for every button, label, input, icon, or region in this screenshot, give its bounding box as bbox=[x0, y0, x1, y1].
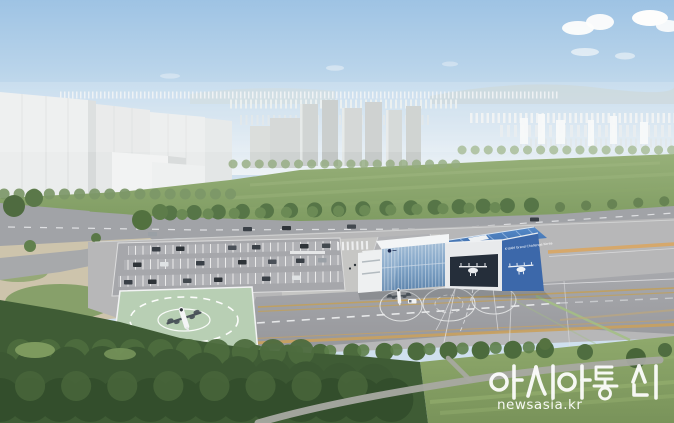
glass-facade bbox=[382, 243, 445, 291]
hangar-front bbox=[445, 240, 502, 291]
news-photo-rendering: UAM vertiport test facility with glass t… bbox=[0, 0, 674, 423]
rendering-canvas: K-UAM Grand Challenge Korea bbox=[0, 0, 674, 423]
service-van bbox=[408, 299, 417, 304]
annex-wing bbox=[358, 250, 382, 293]
building-logo bbox=[388, 249, 392, 253]
atmospheric-haze bbox=[0, 82, 674, 152]
watermark-website: newsasia.kr bbox=[497, 397, 582, 413]
